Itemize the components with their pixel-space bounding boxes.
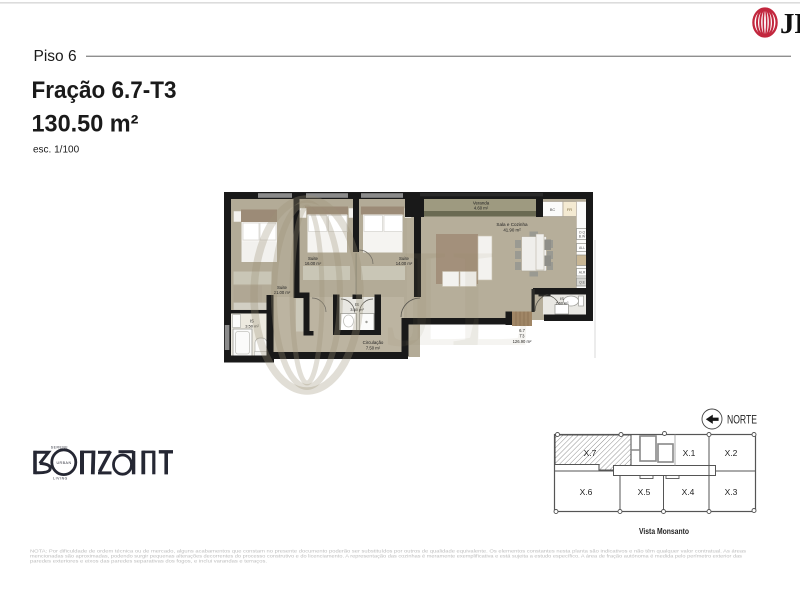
svg-text:X.3: X.3	[725, 487, 738, 497]
svg-text:Q.E: Q.E	[579, 281, 586, 285]
svg-text:X.5: X.5	[638, 487, 651, 497]
svg-text:X.6: X.6	[580, 487, 593, 497]
svg-text:LIVING: LIVING	[53, 476, 68, 480]
svg-text:ALR: ALR	[579, 271, 586, 275]
svg-text:ALL: ALL	[579, 246, 585, 250]
svg-text:130.50 m²: 130.50 m²	[32, 111, 139, 138]
svg-text:2.60 m²: 2.60 m²	[556, 302, 570, 306]
svg-text:esc. 1/100: esc. 1/100	[33, 145, 80, 156]
svg-text:Circulação: Circulação	[363, 340, 384, 345]
svg-text:URBAN: URBAN	[56, 461, 71, 465]
svg-text:Vista Monsanto: Vista Monsanto	[639, 527, 689, 536]
svg-text:JLL: JLL	[780, 8, 800, 40]
svg-text:X.2: X.2	[725, 448, 738, 458]
svg-text:paredes exteriores e eixos das: paredes exteriores e eixos das paredes s…	[30, 559, 267, 565]
svg-text:NORTE: NORTE	[727, 415, 757, 427]
svg-text:Fração 6.7-T3: Fração 6.7-T3	[32, 77, 177, 104]
svg-text:SERENE: SERENE	[51, 446, 69, 450]
svg-text:JLL: JLL	[385, 221, 535, 376]
svg-text:FR: FR	[567, 207, 572, 212]
svg-text:B.W: B.W	[579, 235, 586, 239]
svg-text:X.1: X.1	[683, 448, 696, 458]
svg-text:X.4: X.4	[682, 487, 695, 497]
svg-text:BC: BC	[550, 207, 556, 212]
svg-text:4.60 m²: 4.60 m²	[474, 206, 489, 211]
svg-text:IS: IS	[560, 296, 564, 301]
svg-text:7.50 m²: 7.50 m²	[366, 346, 381, 351]
svg-text:X.7: X.7	[584, 448, 597, 458]
svg-text:Piso 6: Piso 6	[34, 48, 77, 65]
